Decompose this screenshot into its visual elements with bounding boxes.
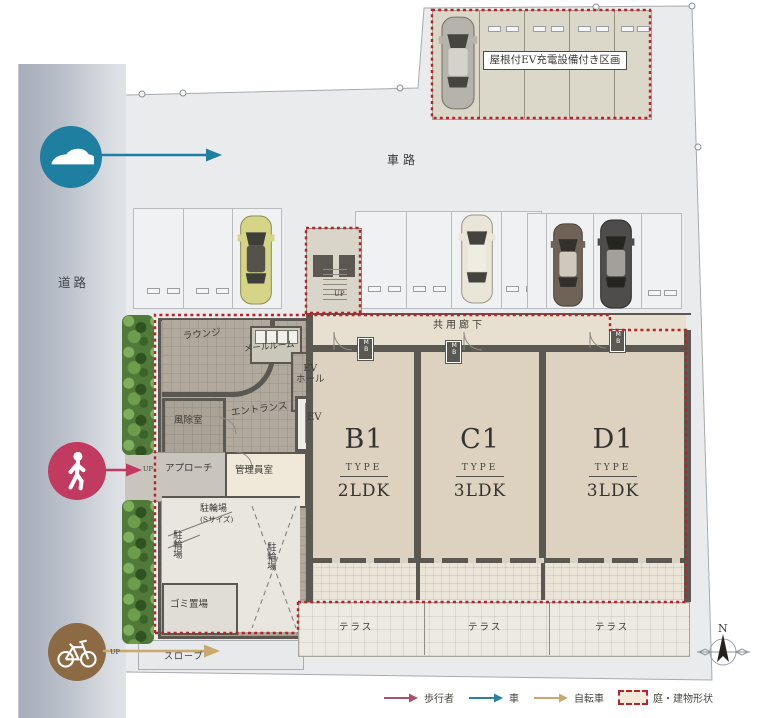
up-label-slope: UP (110, 649, 120, 656)
mb-box-b1: MB (358, 338, 373, 360)
approach-label: アプローチ (165, 464, 213, 475)
building-shape-swatch-icon (618, 690, 648, 705)
driveway-label: 車路 (387, 154, 419, 168)
windbreak-room (162, 398, 226, 456)
car-dark (596, 218, 636, 310)
legend-item-pedestrian: 歩行者 (383, 690, 454, 705)
elevator-label: EV (307, 412, 322, 424)
mb-box-d1: MB (610, 330, 625, 352)
terrace-label-c1: テラス (468, 623, 502, 634)
bike-storage-right-label: 駐輪場 (264, 542, 275, 571)
car-yellow (237, 214, 275, 306)
approach-walkway (125, 452, 227, 502)
legend-item-car: 車 (468, 690, 519, 705)
up-label-stairs: UP (334, 290, 345, 298)
car-ev-stall (437, 15, 479, 111)
bicycle-arrow-icon (533, 692, 569, 704)
legend-item-bicycle: 自転車 (533, 690, 604, 705)
car-brown (549, 222, 587, 308)
car-white (458, 213, 496, 305)
windbreak-label: 風除室 (174, 416, 203, 427)
north-label: N (718, 623, 728, 636)
pedestrian-arrow-icon (383, 692, 419, 704)
garbage-label: ゴミ置場 (170, 600, 208, 611)
up-label-approach: UP (143, 466, 153, 473)
parking-row-middle (355, 211, 542, 309)
slope-ramp (138, 640, 304, 670)
legend: 歩行者 車 自転車 庭・建物形状 (383, 690, 713, 705)
corridor-label: 共用廊下 (433, 320, 485, 332)
car-access-icon (40, 126, 102, 188)
unit-b1-label: B1 TYPE 2LDK (316, 424, 412, 501)
bike-storage-left-label: 駐輪場 (170, 530, 181, 559)
road-label: 道路 (58, 276, 89, 290)
bicycle-access-icon (48, 623, 106, 681)
site-plan: 道路 屋根付EV充電設備付き区画 車路 UP (0, 0, 770, 718)
pedestrian-access-icon (48, 442, 106, 500)
terrace-label-d1: テラス (595, 623, 629, 634)
unit-c1-label: C1 TYPE 3LDK (432, 424, 528, 501)
car-arrow-icon (468, 692, 504, 704)
hedge-upper (122, 315, 154, 455)
balcony-strip (313, 563, 684, 600)
ev-parking-label: 屋根付EV充電設備付き区画 (483, 51, 627, 70)
bike-storage-s-size-label: (Sサイズ) (200, 516, 233, 525)
legend-item-building-shape: 庭・建物形状 (618, 690, 713, 705)
terrace-label-b1: テラス (339, 623, 373, 634)
hedge-lower (122, 500, 154, 644)
mb-box-c1: MB (446, 341, 461, 363)
ev-hall-label: EVホール (296, 364, 325, 386)
manager-room-label: 管理員室 (235, 466, 273, 477)
exterior-stair-structure (306, 228, 362, 315)
bike-storage-s-label: 駐輪場 (200, 504, 227, 514)
unit-d1-label: D1 TYPE 3LDK (565, 424, 661, 501)
slope-label: スロープ (164, 652, 203, 662)
